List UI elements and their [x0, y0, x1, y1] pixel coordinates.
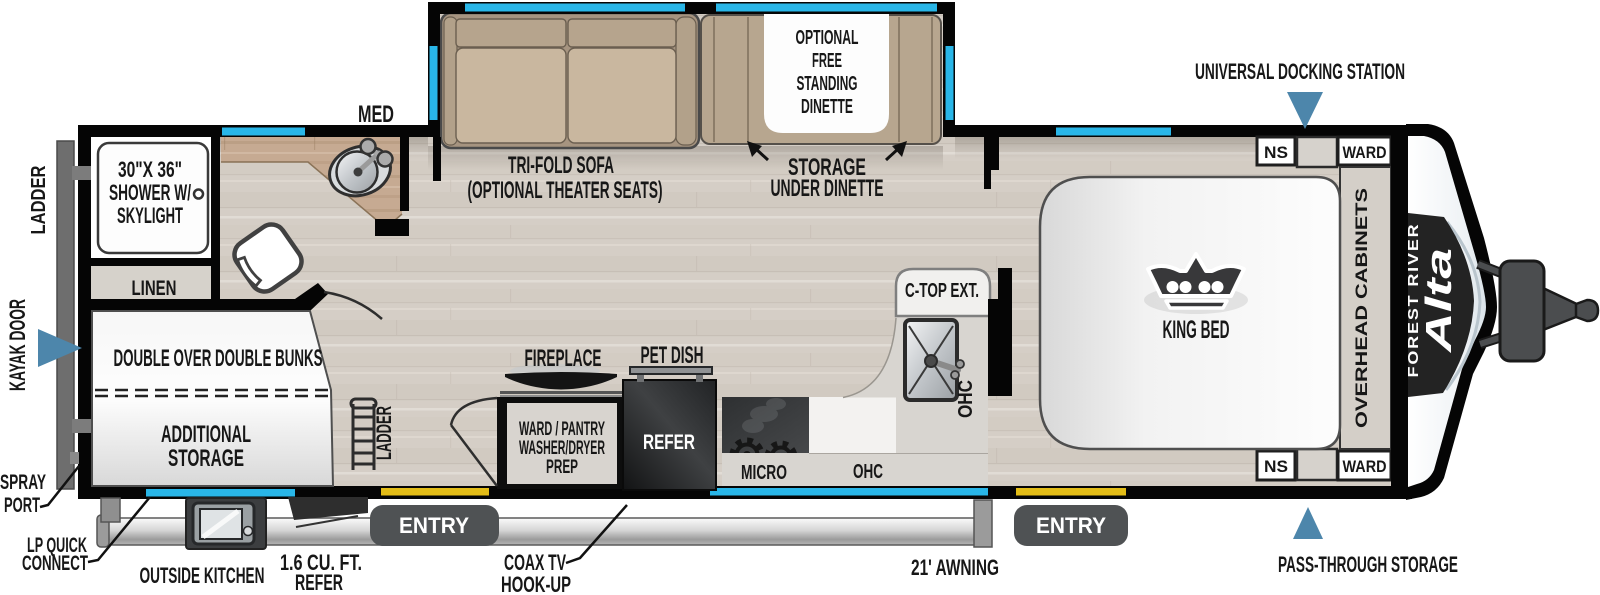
svg-text:REFER: REFER: [295, 570, 343, 595]
svg-text:ADDITIONAL: ADDITIONAL: [161, 421, 251, 448]
svg-text:PREP: PREP: [546, 457, 578, 478]
svg-text:WARD: WARD: [1343, 143, 1387, 162]
svg-text:UNIVERSAL DOCKING STATION: UNIVERSAL DOCKING STATION: [1195, 59, 1405, 84]
svg-text:REFER: REFER: [643, 431, 695, 454]
svg-text:21' AWNING: 21' AWNING: [911, 555, 999, 580]
svg-text:CONNECT: CONNECT: [22, 552, 88, 575]
svg-text:LINEN: LINEN: [132, 277, 177, 300]
svg-text:PORT: PORT: [4, 494, 40, 517]
svg-text:DOUBLE OVER DOUBLE BUNKS: DOUBLE OVER DOUBLE BUNKS: [114, 345, 323, 372]
svg-text:STANDING: STANDING: [797, 73, 858, 95]
svg-text:DINETTE: DINETTE: [801, 96, 853, 118]
svg-text:WASHER/DRYER: WASHER/DRYER: [519, 438, 605, 459]
svg-text:ENTRY: ENTRY: [399, 513, 469, 538]
svg-text:FIREPLACE: FIREPLACE: [525, 345, 602, 372]
svg-text:OHC: OHC: [955, 380, 977, 418]
svg-text:WARD: WARD: [1343, 457, 1387, 476]
svg-text:SKYLIGHT: SKYLIGHT: [117, 203, 183, 228]
svg-text:PET DISH: PET DISH: [641, 342, 704, 369]
svg-text:MICRO: MICRO: [741, 462, 787, 484]
svg-text:MED: MED: [358, 101, 394, 128]
svg-text:KAYAK DOOR: KAYAK DOOR: [5, 299, 30, 391]
svg-text:OPTIONAL: OPTIONAL: [796, 27, 859, 49]
svg-text:HOOK-UP: HOOK-UP: [501, 572, 571, 595]
svg-text:WARD / PANTRY: WARD / PANTRY: [519, 419, 605, 440]
svg-text:ENTRY: ENTRY: [1036, 513, 1106, 538]
svg-text:TRI-FOLD SOFA: TRI-FOLD SOFA: [508, 152, 614, 179]
svg-text:OUTSIDE KITCHEN: OUTSIDE KITCHEN: [140, 563, 265, 588]
svg-text:(OPTIONAL THEATER SEATS): (OPTIONAL THEATER SEATS): [468, 177, 663, 204]
svg-text:LADDER: LADDER: [28, 165, 50, 234]
svg-text:KING BED: KING BED: [1163, 316, 1230, 344]
svg-text:C-TOP EXT.: C-TOP EXT.: [905, 280, 979, 302]
svg-text:NS: NS: [1264, 457, 1288, 476]
svg-text:SHOWER W/: SHOWER W/: [109, 180, 191, 205]
svg-text:30"X 36": 30"X 36": [118, 157, 182, 182]
svg-text:Alta: Alta: [1418, 248, 1459, 354]
svg-text:UNDER DINETTE: UNDER DINETTE: [771, 175, 884, 202]
svg-text:FREE: FREE: [812, 50, 842, 72]
svg-text:SPRAY: SPRAY: [0, 471, 46, 494]
svg-text:NS: NS: [1264, 143, 1288, 162]
svg-text:OVERHEAD CABINETS: OVERHEAD CABINETS: [1352, 188, 1371, 428]
svg-text:OHC: OHC: [853, 461, 883, 483]
svg-text:PASS-THROUGH STORAGE: PASS-THROUGH STORAGE: [1278, 552, 1458, 577]
svg-text:STORAGE: STORAGE: [168, 445, 244, 472]
svg-text:LADDER: LADDER: [373, 406, 396, 460]
